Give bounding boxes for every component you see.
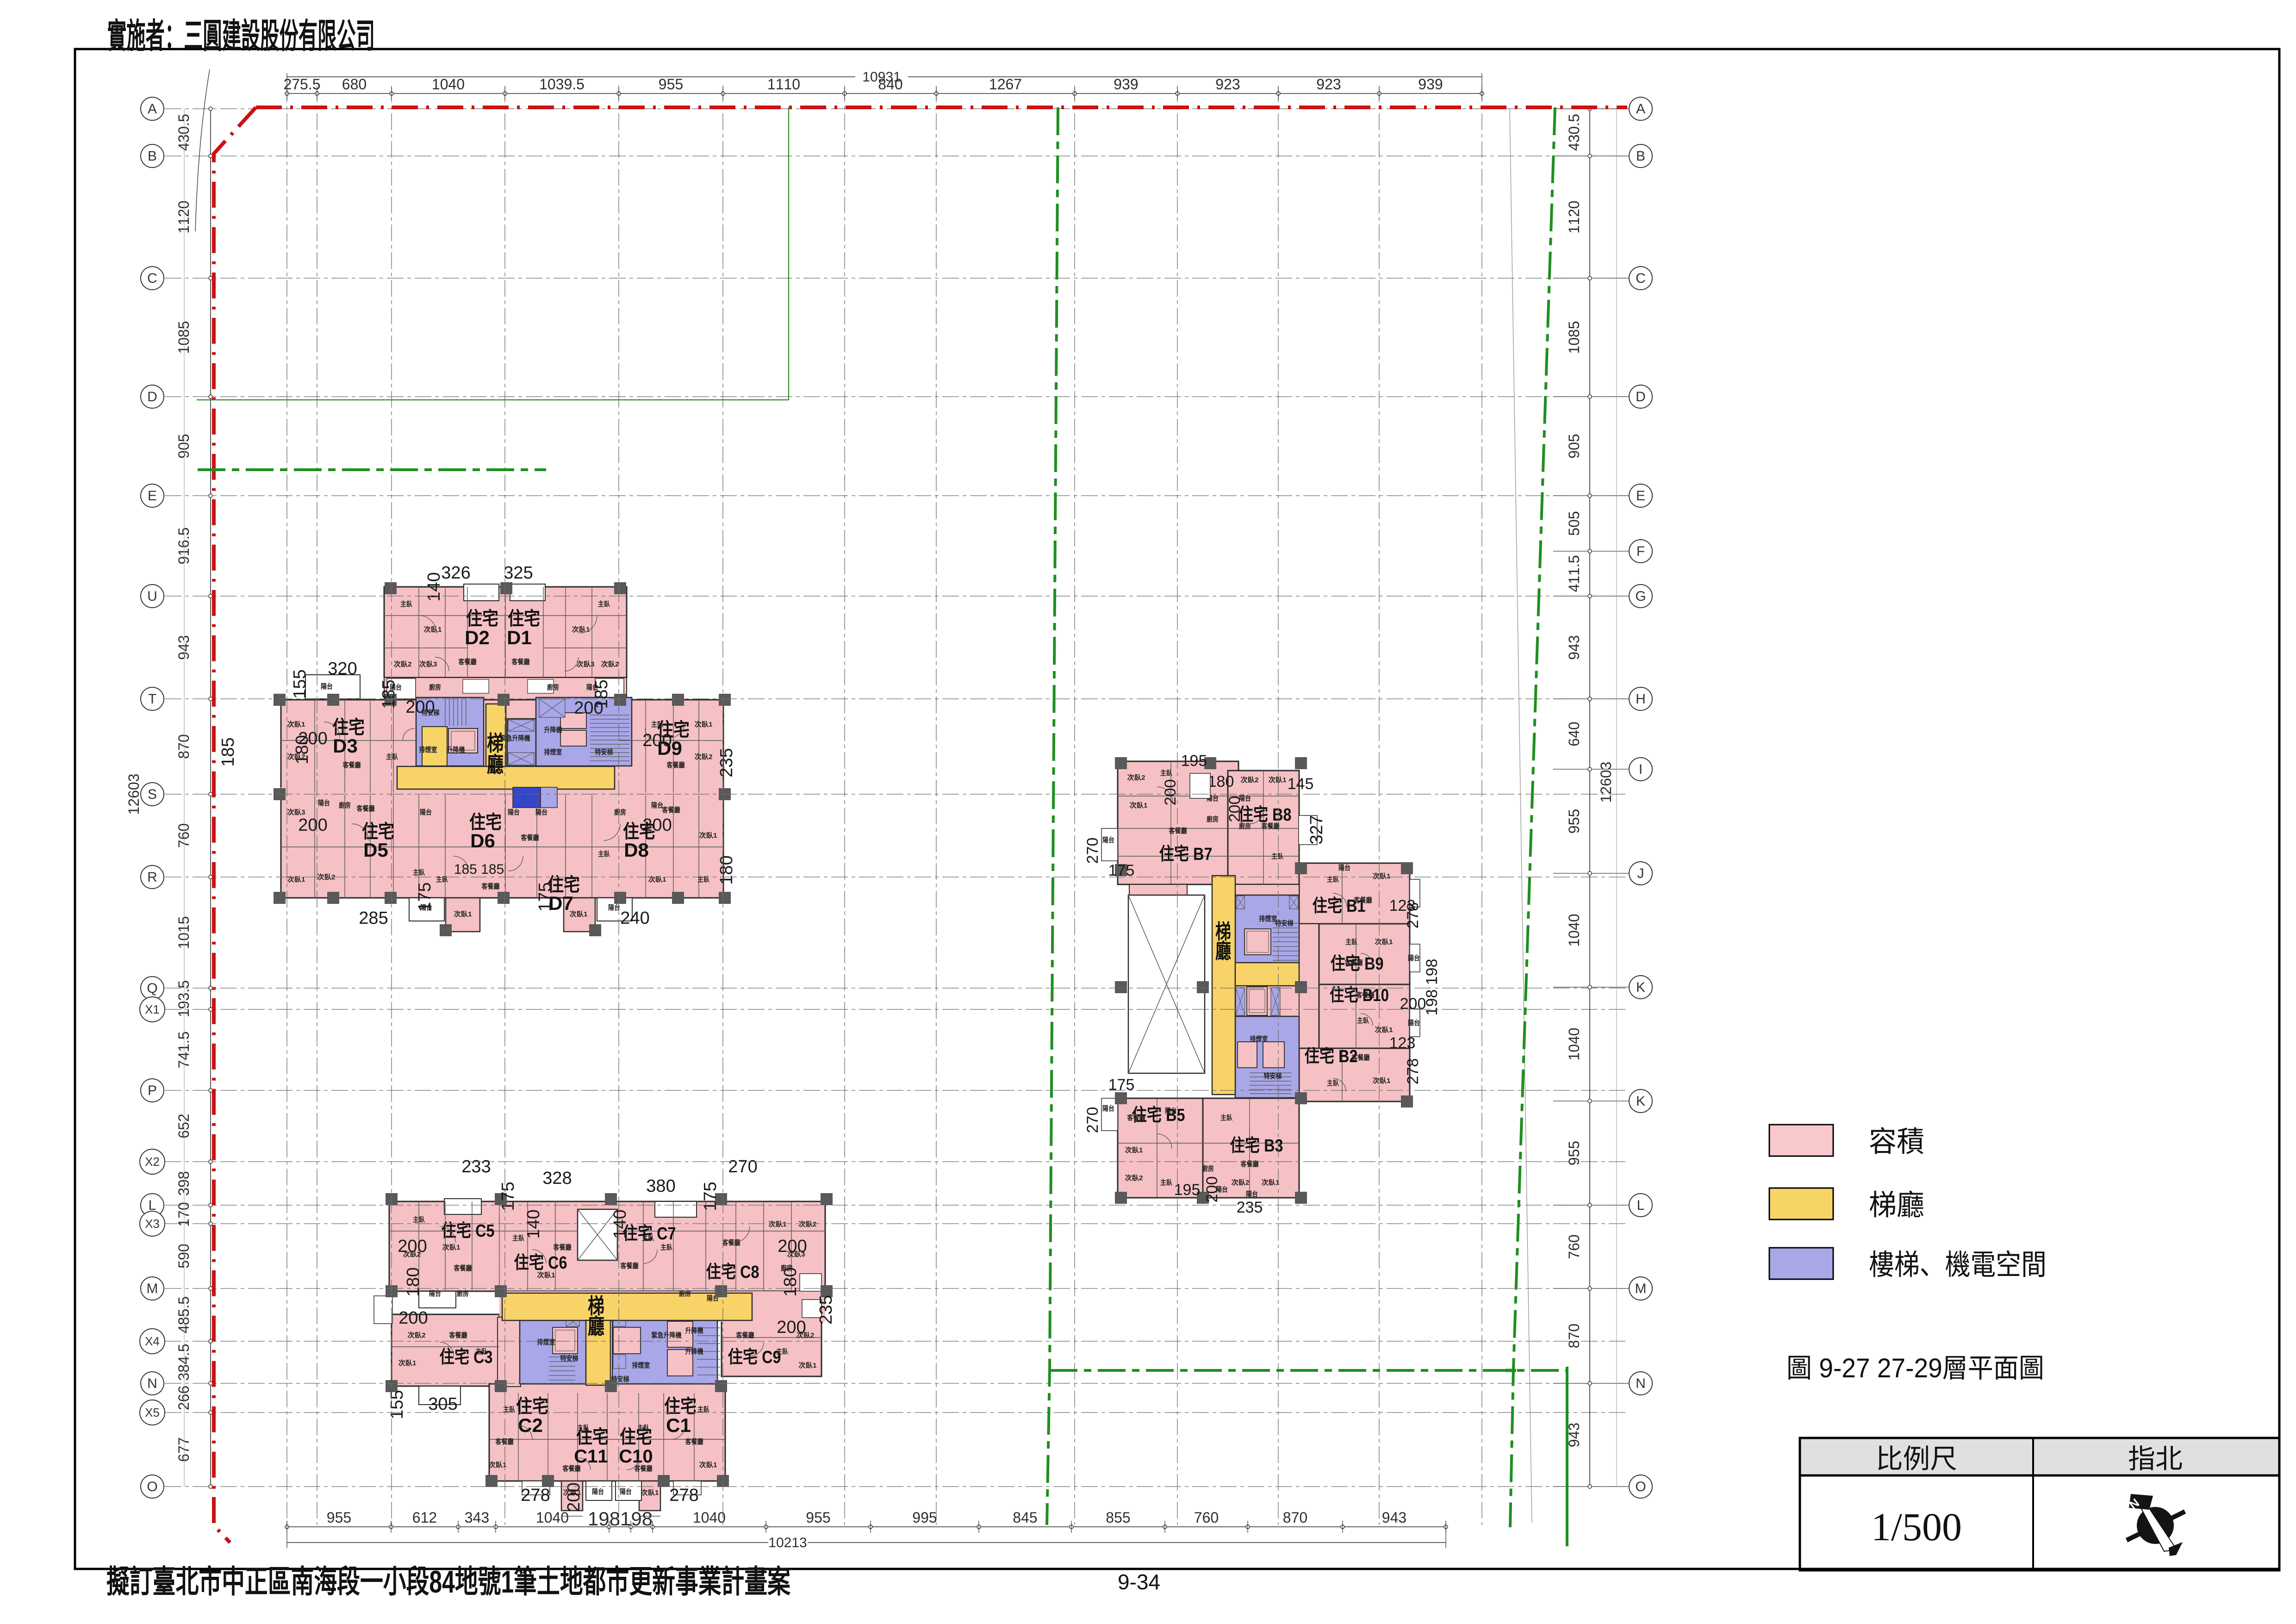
svg-text:客餐廳: 客餐廳: [1127, 1114, 1145, 1122]
svg-text:次臥2: 次臥2: [1125, 1174, 1143, 1182]
svg-text:主臥: 主臥: [475, 1347, 488, 1356]
svg-text:主臥: 主臥: [1271, 852, 1284, 860]
svg-text:1120: 1120: [1566, 200, 1582, 233]
svg-text:住宅 B2: 住宅 B2: [1305, 1046, 1358, 1066]
svg-text:C: C: [1636, 271, 1646, 286]
svg-text:緊急升降機: 緊急升降機: [652, 1331, 682, 1339]
svg-text:D6: D6: [470, 830, 495, 852]
svg-text:235: 235: [1237, 1199, 1263, 1216]
svg-text:D5: D5: [363, 839, 388, 861]
svg-text:實施者：三圓建設股份有限公司: 實施者：三圓建設股份有限公司: [107, 17, 375, 55]
svg-text:343: 343: [465, 1509, 489, 1526]
svg-text:N: N: [147, 1376, 157, 1391]
svg-text:客餐廳: 客餐廳: [458, 658, 477, 666]
svg-text:327: 327: [1307, 815, 1326, 844]
svg-text:D3: D3: [333, 735, 358, 757]
svg-text:排煙室: 排煙室: [1259, 915, 1277, 923]
svg-text:住宅: 住宅: [664, 1396, 697, 1417]
svg-text:175: 175: [535, 882, 555, 911]
svg-text:陽台: 陽台: [592, 1487, 604, 1496]
svg-text:C10: C10: [619, 1446, 653, 1467]
svg-text:H: H: [1636, 691, 1646, 707]
svg-text:廚房: 廚房: [429, 683, 441, 691]
svg-text:12603: 12603: [1598, 762, 1614, 803]
svg-text:X5: X5: [145, 1406, 160, 1419]
svg-text:200: 200: [1203, 1176, 1221, 1203]
svg-text:圖 9-27 27-29層平面圖: 圖 9-27 27-29層平面圖: [1786, 1353, 2044, 1383]
svg-text:140: 140: [524, 1209, 543, 1238]
svg-text:N: N: [1636, 1376, 1646, 1391]
svg-text:次臥1: 次臥1: [287, 720, 305, 728]
svg-text:客餐廳: 客餐廳: [1356, 991, 1375, 999]
svg-text:185: 185: [379, 679, 398, 709]
svg-text:430.5: 430.5: [175, 114, 192, 151]
svg-text:195: 195: [1181, 752, 1207, 770]
svg-text:次臥2: 次臥2: [1127, 773, 1145, 782]
svg-text:E: E: [1636, 488, 1645, 504]
svg-text:1085: 1085: [175, 321, 192, 354]
svg-text:855: 855: [1106, 1509, 1130, 1526]
svg-text:200: 200: [1162, 779, 1179, 806]
svg-text:容積: 容積: [1869, 1126, 1924, 1158]
svg-text:175: 175: [1108, 1076, 1135, 1094]
svg-text:客餐廳: 客餐廳: [342, 761, 361, 769]
svg-text:I: I: [1639, 762, 1643, 777]
svg-text:客餐廳: 客餐廳: [1344, 958, 1363, 967]
svg-text:198198: 198198: [588, 1508, 653, 1530]
svg-text:398: 398: [175, 1171, 192, 1195]
svg-text:200: 200: [642, 731, 672, 750]
svg-text:1120: 1120: [175, 200, 192, 233]
svg-text:次臥1: 次臥1: [1375, 938, 1393, 946]
svg-text:995: 995: [912, 1509, 937, 1526]
svg-text:廚房: 廚房: [339, 801, 351, 809]
svg-text:1040: 1040: [693, 1509, 726, 1526]
svg-text:320: 320: [328, 659, 357, 678]
svg-text:陽台: 陽台: [1102, 836, 1114, 844]
svg-text:155: 155: [387, 1390, 407, 1419]
svg-text:次臥1: 次臥1: [1262, 1178, 1280, 1187]
svg-text:B: B: [148, 149, 157, 164]
svg-text:次臥1: 次臥1: [799, 1361, 817, 1369]
svg-text:180: 180: [781, 1267, 800, 1296]
svg-text:擬訂臺北市中正區南海段一小段84地號1筆土地都市更新事業計畫: 擬訂臺北市中正區南海段一小段84地號1筆土地都市更新事業計畫案: [106, 1564, 791, 1599]
svg-text:主臥: 主臥: [1220, 1114, 1233, 1122]
svg-text:200: 200: [777, 1318, 806, 1337]
svg-text:1040: 1040: [432, 76, 465, 93]
svg-text:客餐廳: 客餐廳: [1261, 822, 1280, 830]
svg-text:主臥: 主臥: [577, 1424, 590, 1432]
svg-text:905: 905: [1566, 434, 1582, 458]
svg-text:1015: 1015: [175, 916, 192, 949]
svg-text:主臥: 主臥: [697, 1405, 710, 1413]
svg-text:客餐廳: 客餐廳: [562, 1464, 581, 1473]
svg-text:主臥: 主臥: [776, 1347, 789, 1356]
svg-text:D: D: [1636, 389, 1646, 404]
svg-text:485.5: 485.5: [175, 1296, 192, 1333]
svg-text:次臥1: 次臥1: [1130, 801, 1148, 809]
svg-text:主臥: 主臥: [1327, 1079, 1339, 1087]
svg-text:特安梯: 特安梯: [560, 1354, 579, 1363]
svg-text:住宅: 住宅: [516, 1396, 548, 1417]
svg-text:145: 145: [1288, 775, 1314, 793]
svg-text:180: 180: [1208, 773, 1234, 790]
svg-text:主臥: 主臥: [413, 868, 425, 877]
svg-text:X4: X4: [145, 1334, 160, 1348]
svg-text:12603: 12603: [125, 774, 142, 815]
svg-text:D2: D2: [465, 627, 490, 648]
svg-text:陽台: 陽台: [651, 801, 663, 809]
svg-text:X3: X3: [145, 1217, 160, 1231]
svg-text:次臥1: 次臥1: [489, 1461, 507, 1469]
svg-text:客餐廳: 客餐廳: [620, 1262, 639, 1270]
svg-text:客餐廳: 客餐廳: [722, 1238, 740, 1247]
svg-text:590: 590: [175, 1244, 192, 1268]
svg-text:客餐廳: 客餐廳: [685, 1437, 703, 1446]
svg-text:次臥1: 次臥1: [641, 1488, 659, 1497]
svg-text:次臥1: 次臥1: [537, 1271, 555, 1279]
svg-text:240: 240: [620, 908, 649, 928]
svg-text:次臥2: 次臥2: [394, 660, 412, 668]
svg-text:B: B: [1636, 149, 1645, 164]
svg-text:123: 123: [1389, 1034, 1416, 1052]
svg-text:955: 955: [659, 76, 683, 93]
svg-text:陽台: 陽台: [620, 1487, 632, 1496]
svg-text:住宅: 住宅: [508, 608, 540, 629]
svg-text:客餐廳: 客餐廳: [634, 1464, 653, 1473]
svg-text:升降機: 升降機: [544, 726, 562, 734]
svg-text:870: 870: [175, 734, 192, 759]
svg-text:次臥1: 次臥1: [699, 831, 717, 840]
svg-text:380: 380: [646, 1176, 675, 1196]
svg-text:D: D: [147, 389, 157, 404]
svg-text:廚房: 廚房: [679, 1289, 691, 1298]
svg-text:943: 943: [175, 635, 192, 660]
svg-text:939: 939: [1418, 76, 1443, 93]
svg-text:916.5: 916.5: [175, 527, 192, 564]
svg-text:1040: 1040: [1566, 1027, 1582, 1060]
svg-text:陽台: 陽台: [608, 903, 620, 912]
svg-text:梯廳: 梯廳: [1869, 1189, 1924, 1221]
svg-text:次臥2: 次臥2: [799, 1220, 817, 1228]
svg-text:140: 140: [424, 572, 444, 601]
svg-text:客餐廳: 客餐廳: [511, 658, 530, 666]
svg-text:278: 278: [669, 1486, 698, 1505]
svg-text:D8: D8: [624, 839, 649, 861]
svg-text:客餐廳: 客餐廳: [736, 1331, 754, 1339]
svg-text:D1: D1: [507, 627, 532, 648]
svg-text:次臥1: 次臥1: [570, 910, 588, 918]
svg-text:陽台: 陽台: [1338, 864, 1350, 872]
svg-text:430.5: 430.5: [1566, 114, 1582, 151]
svg-text:180: 180: [717, 855, 736, 884]
svg-text:O: O: [1635, 1479, 1646, 1494]
svg-text:195: 195: [1174, 1181, 1201, 1199]
svg-text:次臥1: 次臥1: [424, 625, 442, 634]
svg-text:客餐廳: 客餐廳: [495, 1437, 514, 1446]
svg-text:住宅 B3: 住宅 B3: [1230, 1136, 1283, 1156]
svg-text:870: 870: [1566, 1324, 1582, 1348]
svg-text:次臥1: 次臥1: [1125, 1146, 1143, 1154]
svg-text:200: 200: [298, 815, 327, 835]
svg-text:客餐廳: 客餐廳: [553, 1243, 572, 1251]
svg-text:主臥: 主臥: [1160, 1178, 1173, 1187]
svg-text:1040: 1040: [1566, 914, 1582, 946]
svg-text:主臥: 主臥: [413, 1215, 425, 1224]
svg-text:955: 955: [1566, 809, 1582, 834]
svg-text:870: 870: [1283, 1509, 1307, 1526]
svg-text:275.5: 275.5: [283, 76, 320, 93]
svg-text:排煙室: 排煙室: [1250, 1035, 1268, 1043]
svg-text:客餐廳: 客餐廳: [356, 804, 375, 813]
svg-text:升降機: 升降機: [447, 746, 465, 754]
svg-text:185: 185: [592, 679, 611, 709]
svg-text:指北: 指北: [2128, 1444, 2183, 1474]
svg-text:180: 180: [292, 735, 312, 764]
svg-text:P: P: [148, 1083, 157, 1098]
svg-text:次臥1: 次臥1: [695, 720, 713, 728]
svg-text:1/500: 1/500: [1871, 1505, 1962, 1549]
svg-text:陽台: 陽台: [508, 808, 520, 816]
svg-text:200: 200: [398, 1308, 428, 1328]
svg-text:次臥1: 次臥1: [287, 875, 305, 884]
svg-text:客餐廳: 客餐廳: [662, 806, 680, 814]
svg-text:住宅 B7: 住宅 B7: [1159, 844, 1213, 864]
svg-text:175: 175: [1108, 862, 1135, 879]
svg-text:陽台: 陽台: [321, 682, 333, 691]
svg-text:客餐廳: 客餐廳: [454, 1264, 472, 1272]
svg-text:主臥: 主臥: [637, 1424, 650, 1432]
svg-text:955: 955: [806, 1509, 830, 1526]
svg-text:955: 955: [327, 1509, 351, 1526]
svg-text:特安梯: 特安梯: [1264, 1072, 1282, 1080]
svg-text:次臥3: 次臥3: [419, 660, 437, 668]
svg-text:主臥: 主臥: [386, 753, 398, 761]
svg-text:140: 140: [610, 1209, 630, 1238]
svg-text:270: 270: [1084, 1107, 1101, 1133]
svg-text:升降機: 升降機: [685, 1347, 703, 1356]
svg-text:943: 943: [1382, 1509, 1406, 1526]
svg-text:排煙室: 排煙室: [544, 748, 562, 756]
svg-text:排煙室: 排煙室: [537, 1338, 555, 1346]
svg-text:10213: 10213: [768, 1535, 807, 1550]
svg-text:住宅: 住宅: [466, 608, 498, 629]
svg-text:次臥1: 次臥1: [1373, 1076, 1391, 1085]
svg-text:R: R: [147, 870, 157, 885]
svg-text:廳: 廳: [1215, 940, 1231, 963]
svg-text:384.5: 384.5: [175, 1344, 192, 1381]
svg-text:陽台: 陽台: [1165, 1107, 1177, 1115]
svg-text:200: 200: [1400, 995, 1426, 1013]
svg-text:X2: X2: [145, 1155, 160, 1169]
svg-text:M: M: [147, 1281, 158, 1296]
svg-text:M: M: [1635, 1281, 1647, 1296]
svg-text:次臥2: 次臥2: [695, 753, 713, 761]
svg-text:主臥: 主臥: [598, 850, 610, 858]
svg-text:住宅 C8: 住宅 C8: [706, 1262, 759, 1282]
svg-text:主臥: 主臥: [660, 1243, 673, 1251]
svg-text:次臥1: 次臥1: [769, 1220, 787, 1228]
svg-text:193.5: 193.5: [175, 980, 192, 1017]
svg-text:主臥: 主臥: [651, 720, 664, 728]
svg-text:A: A: [1636, 101, 1645, 117]
svg-text:次臥2: 次臥2: [1232, 1178, 1250, 1187]
svg-text:233: 233: [461, 1157, 491, 1176]
svg-text:278: 278: [1404, 1058, 1422, 1085]
svg-text:923: 923: [1215, 76, 1240, 93]
svg-text:住宅 C6: 住宅 C6: [514, 1253, 567, 1273]
svg-text:次臥1: 次臥1: [398, 1359, 417, 1367]
svg-text:次臥1: 次臥1: [1373, 872, 1391, 880]
svg-text:955: 955: [1566, 1141, 1582, 1165]
svg-text:樓梯、機電空間: 樓梯、機電空間: [1869, 1249, 2047, 1281]
svg-text:陽台: 陽台: [535, 808, 548, 816]
svg-text:Q: Q: [147, 981, 157, 996]
svg-text:741.5: 741.5: [175, 1031, 192, 1068]
svg-text:652: 652: [175, 1114, 192, 1138]
svg-text:200: 200: [778, 1237, 807, 1256]
svg-text:O: O: [147, 1479, 157, 1494]
svg-text:主臥: 主臥: [1327, 875, 1339, 884]
svg-text:次臥2: 次臥2: [1241, 776, 1259, 784]
svg-text:陽台: 陽台: [1408, 954, 1420, 962]
svg-text:180: 180: [404, 1267, 423, 1296]
svg-text:次臥1: 次臥1: [1375, 1026, 1393, 1034]
svg-text:266: 266: [175, 1386, 192, 1410]
svg-text:主臥: 主臥: [1357, 1016, 1369, 1025]
svg-text:200: 200: [642, 815, 672, 835]
svg-text:X1: X1: [145, 1002, 160, 1016]
svg-text:主臥: 主臥: [697, 875, 710, 884]
svg-text:235: 235: [717, 748, 736, 777]
svg-text:廚房: 廚房: [614, 808, 626, 816]
svg-text:K: K: [1636, 1094, 1645, 1109]
svg-text:主臥: 主臥: [642, 1234, 654, 1242]
svg-text:235: 235: [816, 1295, 836, 1324]
svg-text:939: 939: [1114, 76, 1138, 93]
svg-text:客餐廳: 客餐廳: [1354, 896, 1372, 904]
svg-text:270: 270: [728, 1157, 757, 1176]
svg-text:住宅 C9: 住宅 C9: [728, 1347, 781, 1367]
svg-text:升降機: 升降機: [685, 1326, 703, 1335]
svg-text:陽台: 陽台: [420, 808, 432, 816]
svg-text:278: 278: [521, 1486, 550, 1505]
svg-text:305: 305: [428, 1394, 457, 1414]
svg-text:680: 680: [342, 76, 367, 93]
svg-text:325: 325: [504, 563, 533, 583]
svg-text:185 185: 185 185: [454, 862, 504, 877]
svg-text:1085: 1085: [1566, 321, 1582, 354]
svg-text:廚房: 廚房: [1207, 815, 1219, 823]
svg-text:285: 285: [359, 908, 388, 928]
svg-text:J: J: [1637, 866, 1644, 881]
svg-text:200: 200: [398, 1237, 427, 1256]
svg-text:次臥2: 次臥2: [601, 660, 619, 668]
svg-text:F: F: [1636, 544, 1645, 559]
svg-text:客餐廳: 客餐廳: [1351, 1053, 1370, 1062]
svg-text:1040: 1040: [536, 1509, 569, 1526]
svg-text:次臥1: 次臥1: [442, 1243, 460, 1251]
svg-text:175: 175: [498, 1182, 518, 1211]
svg-text:主臥: 主臥: [512, 1234, 525, 1242]
svg-text:1267: 1267: [989, 76, 1022, 93]
svg-text:640: 640: [1566, 722, 1582, 746]
svg-text:次臥3: 次臥3: [577, 660, 595, 668]
svg-text:677: 677: [175, 1437, 192, 1462]
svg-text:C: C: [147, 271, 157, 286]
svg-text:S: S: [148, 787, 157, 802]
svg-text:326: 326: [441, 563, 470, 583]
svg-text:次臥1: 次臥1: [572, 625, 590, 634]
svg-text:緊急升降機: 緊急升降機: [500, 734, 530, 742]
svg-text:廚房: 廚房: [1202, 1164, 1214, 1173]
svg-text:客餐廳: 客餐廳: [449, 1331, 467, 1339]
svg-text:G: G: [1635, 589, 1646, 604]
svg-text:陽台: 陽台: [429, 1289, 441, 1298]
svg-text:C1: C1: [666, 1414, 691, 1436]
svg-text:比例尺: 比例尺: [1876, 1444, 1957, 1474]
svg-text:A: A: [148, 101, 157, 117]
svg-text:185: 185: [218, 737, 238, 766]
svg-text:排煙室: 排煙室: [632, 1361, 650, 1369]
svg-text:E: E: [148, 488, 157, 504]
svg-text:次臥1: 次臥1: [454, 910, 472, 918]
svg-text:270: 270: [1084, 838, 1101, 864]
svg-text:陽台: 陽台: [1102, 1104, 1114, 1113]
svg-text:K: K: [1636, 980, 1645, 995]
svg-text:L: L: [1637, 1198, 1645, 1213]
svg-text:次臥2: 次臥2: [408, 1331, 426, 1339]
svg-text:200: 200: [405, 697, 435, 717]
svg-text:排煙室: 排煙室: [419, 746, 437, 754]
svg-text:主臥: 主臥: [400, 600, 413, 608]
svg-text:客餐廳: 客餐廳: [481, 882, 500, 890]
svg-text:次臥1: 次臥1: [699, 1461, 717, 1469]
svg-text:905: 905: [175, 434, 192, 458]
svg-text:943: 943: [1566, 635, 1582, 660]
svg-text:760: 760: [1566, 1234, 1582, 1259]
svg-text:T: T: [148, 691, 156, 707]
svg-text:陽台: 陽台: [318, 799, 330, 807]
svg-text:845: 845: [1013, 1509, 1037, 1526]
svg-text:客餐廳: 客餐廳: [1240, 1160, 1259, 1168]
svg-text:主臥: 主臥: [598, 600, 610, 608]
svg-text:411.5: 411.5: [1566, 555, 1582, 592]
svg-text:200: 200: [564, 1482, 584, 1512]
svg-text:次臥1: 次臥1: [1269, 776, 1287, 784]
svg-text:廚房: 廚房: [547, 683, 559, 691]
svg-text:760: 760: [175, 823, 192, 848]
svg-text:760: 760: [1194, 1509, 1219, 1526]
svg-text:主臥: 主臥: [1345, 938, 1358, 946]
svg-text:612: 612: [412, 1509, 437, 1526]
svg-text:廳: 廳: [588, 1314, 604, 1338]
svg-text:陽台: 陽台: [1246, 1190, 1258, 1198]
svg-text:廳: 廳: [487, 753, 504, 777]
svg-text:主臥: 主臥: [1160, 769, 1173, 777]
svg-text:陽台: 陽台: [1408, 1019, 1420, 1027]
svg-text:次臥1: 次臥1: [648, 875, 666, 884]
svg-text:505: 505: [1566, 511, 1582, 535]
svg-text:廚房: 廚房: [457, 1289, 469, 1298]
svg-text:1039.5: 1039.5: [539, 76, 585, 93]
svg-text:9-34: 9-34: [1118, 1570, 1160, 1594]
svg-text:170: 170: [175, 1202, 192, 1226]
svg-text:175: 175: [415, 882, 435, 911]
svg-text:客餐廳: 客餐廳: [666, 761, 685, 769]
svg-text:278: 278: [1404, 902, 1422, 929]
svg-text:C11: C11: [574, 1446, 608, 1467]
